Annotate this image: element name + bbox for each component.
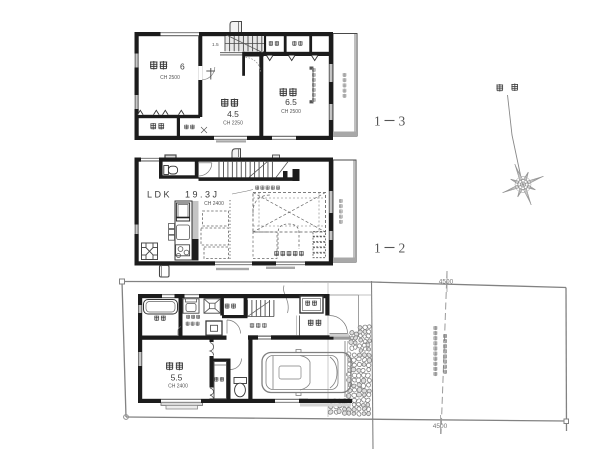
svg-text:CH 2250: CH 2250: [223, 121, 243, 127]
svg-text:CH 2400: CH 2400: [204, 201, 224, 207]
svg-text:5.5: 5.5: [171, 373, 183, 383]
svg-text:6.5: 6.5: [285, 97, 297, 107]
svg-text:1: 1: [374, 241, 381, 256]
svg-text:4.5: 4.5: [227, 109, 239, 119]
svg-text:19.3J: 19.3J: [185, 190, 220, 200]
svg-text:4500: 4500: [439, 279, 454, 286]
svg-text:CH 2500: CH 2500: [281, 109, 301, 115]
svg-text:1: 1: [374, 114, 381, 129]
svg-text:1.5: 1.5: [212, 42, 219, 48]
svg-text:6: 6: [180, 62, 185, 72]
svg-text:CH 2400: CH 2400: [168, 384, 188, 390]
svg-text:2: 2: [399, 241, 406, 256]
svg-text:3: 3: [399, 114, 406, 129]
svg-text:LDK: LDK: [147, 190, 172, 200]
svg-text:CH 2500: CH 2500: [160, 75, 180, 81]
